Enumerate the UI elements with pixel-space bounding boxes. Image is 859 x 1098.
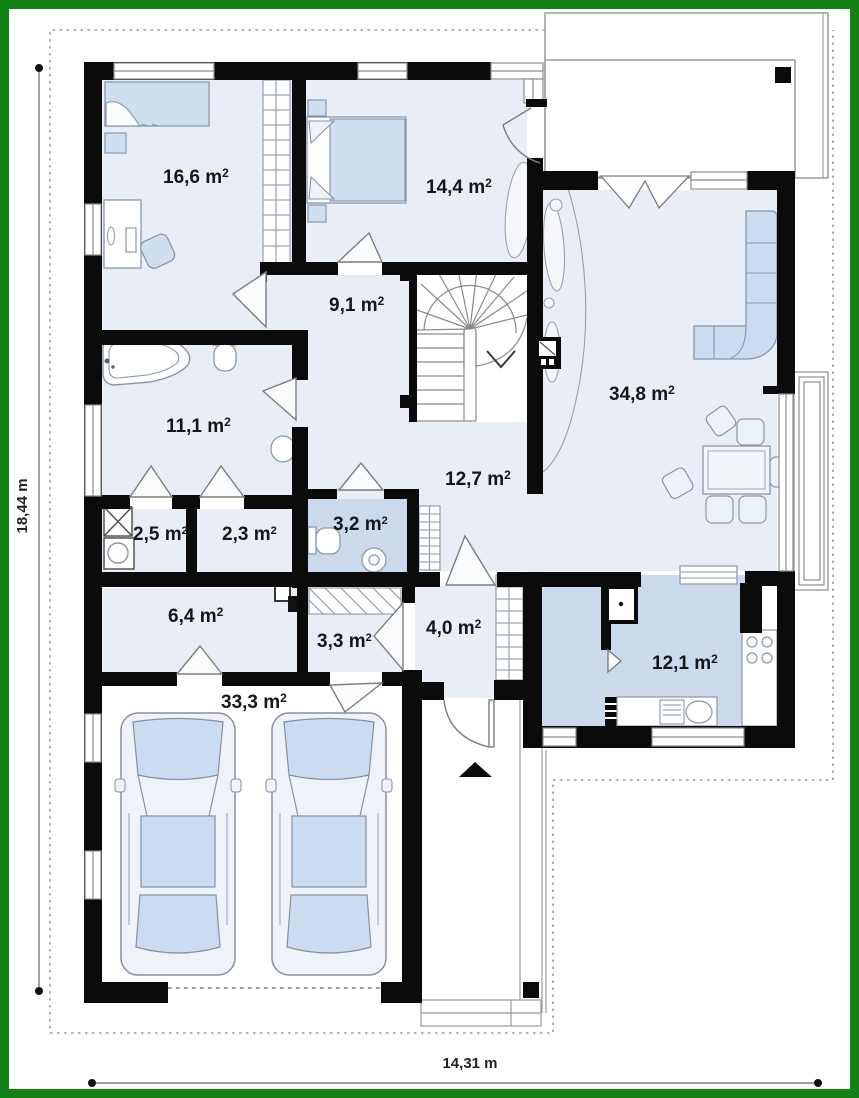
svg-text:2,3 m2: 2,3 m2: [222, 524, 277, 545]
svg-text:4,0 m2: 4,0 m2: [426, 617, 482, 639]
svg-text:12,7 m2: 12,7 m2: [445, 468, 511, 490]
svg-text:34,8 m2: 34,8 m2: [609, 383, 675, 405]
svg-text:2,5 m2: 2,5 m2: [133, 524, 188, 545]
svg-text:11,1 m2: 11,1 m2: [166, 415, 231, 437]
svg-text:3,2 m2: 3,2 m2: [333, 514, 388, 535]
svg-text:6,4 m2: 6,4 m2: [168, 605, 224, 627]
svg-text:3,3 m2: 3,3 m2: [317, 631, 372, 652]
svg-text:14,31 m: 14,31 m: [442, 1055, 497, 1072]
svg-text:33,3 m2: 33,3 m2: [221, 691, 287, 713]
svg-text:9,1 m2: 9,1 m2: [329, 294, 385, 316]
svg-text:16,6 m2: 16,6 m2: [163, 166, 229, 188]
svg-text:12,1 m2: 12,1 m2: [652, 652, 718, 674]
svg-text:18,44 m: 18,44 m: [14, 478, 31, 533]
svg-text:14,4 m2: 14,4 m2: [426, 176, 492, 198]
